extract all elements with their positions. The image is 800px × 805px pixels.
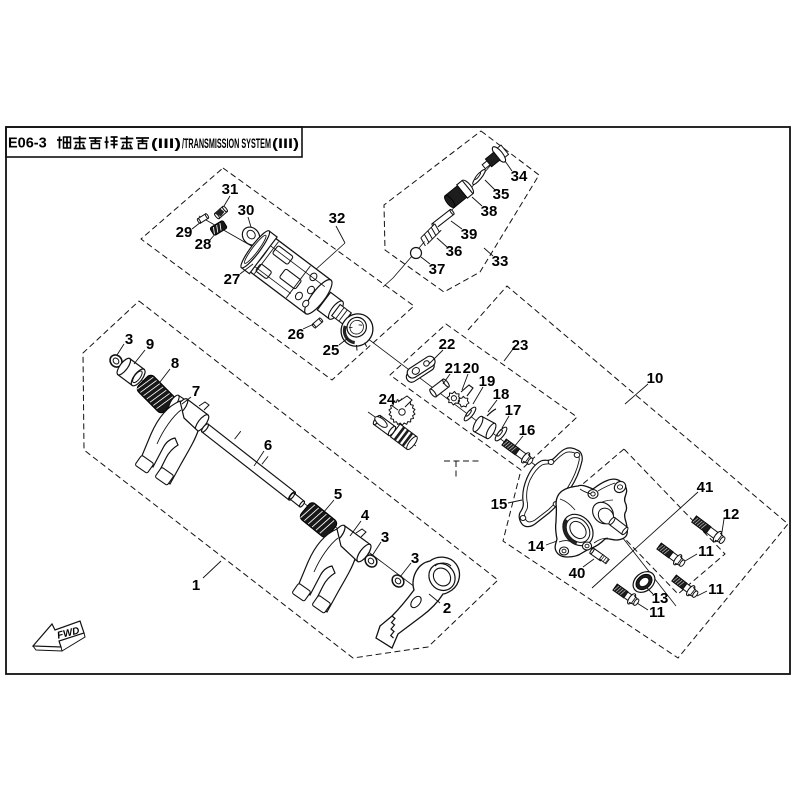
svg-text:22: 22	[439, 336, 456, 353]
svg-text:11: 11	[708, 581, 724, 598]
svg-text:6: 6	[264, 437, 272, 454]
svg-text:4: 4	[361, 507, 370, 524]
svg-text:2: 2	[443, 600, 451, 617]
svg-text:12: 12	[723, 506, 740, 523]
svg-text:10: 10	[647, 370, 664, 387]
svg-text:3: 3	[125, 331, 133, 348]
svg-text:(III): (III)	[151, 135, 181, 151]
svg-text:16: 16	[519, 422, 536, 439]
svg-text:21: 21	[445, 360, 462, 377]
svg-text:19: 19	[479, 373, 496, 390]
svg-text:/TRANSMISSION SYSTEM: /TRANSMISSION SYSTEM	[182, 135, 271, 151]
svg-text:13: 13	[652, 590, 669, 607]
svg-text:32: 32	[329, 210, 346, 227]
svg-text:1: 1	[192, 577, 200, 594]
svg-text:30: 30	[238, 202, 255, 219]
svg-text:31: 31	[222, 181, 239, 198]
svg-text:41: 41	[697, 479, 714, 496]
svg-text:3: 3	[411, 550, 419, 567]
svg-text:8: 8	[171, 355, 179, 372]
svg-text:33: 33	[492, 253, 509, 270]
svg-text:11: 11	[698, 543, 714, 560]
svg-text:24: 24	[379, 391, 396, 408]
svg-text:34: 34	[511, 168, 528, 185]
svg-text:37: 37	[429, 261, 446, 278]
svg-text:9: 9	[146, 336, 154, 353]
svg-text:26: 26	[288, 326, 305, 343]
svg-text:7: 7	[192, 383, 200, 400]
svg-text:23: 23	[512, 337, 529, 354]
svg-text:14: 14	[528, 538, 545, 555]
svg-text:36: 36	[446, 243, 463, 260]
svg-text:5: 5	[334, 486, 342, 503]
svg-text:35: 35	[493, 186, 510, 203]
svg-text:39: 39	[461, 226, 478, 243]
svg-text:40: 40	[569, 565, 586, 582]
svg-text:(III): (III)	[272, 135, 299, 151]
svg-text:28: 28	[195, 236, 212, 253]
svg-text:20: 20	[463, 360, 480, 377]
svg-text:3: 3	[381, 529, 389, 546]
svg-text:38: 38	[481, 203, 498, 220]
svg-text:17: 17	[505, 402, 522, 419]
svg-text:27: 27	[224, 271, 241, 288]
svg-text:29: 29	[176, 224, 193, 241]
svg-text:15: 15	[491, 496, 508, 513]
svg-text:25: 25	[323, 342, 340, 359]
svg-text:E06-3: E06-3	[8, 136, 47, 152]
